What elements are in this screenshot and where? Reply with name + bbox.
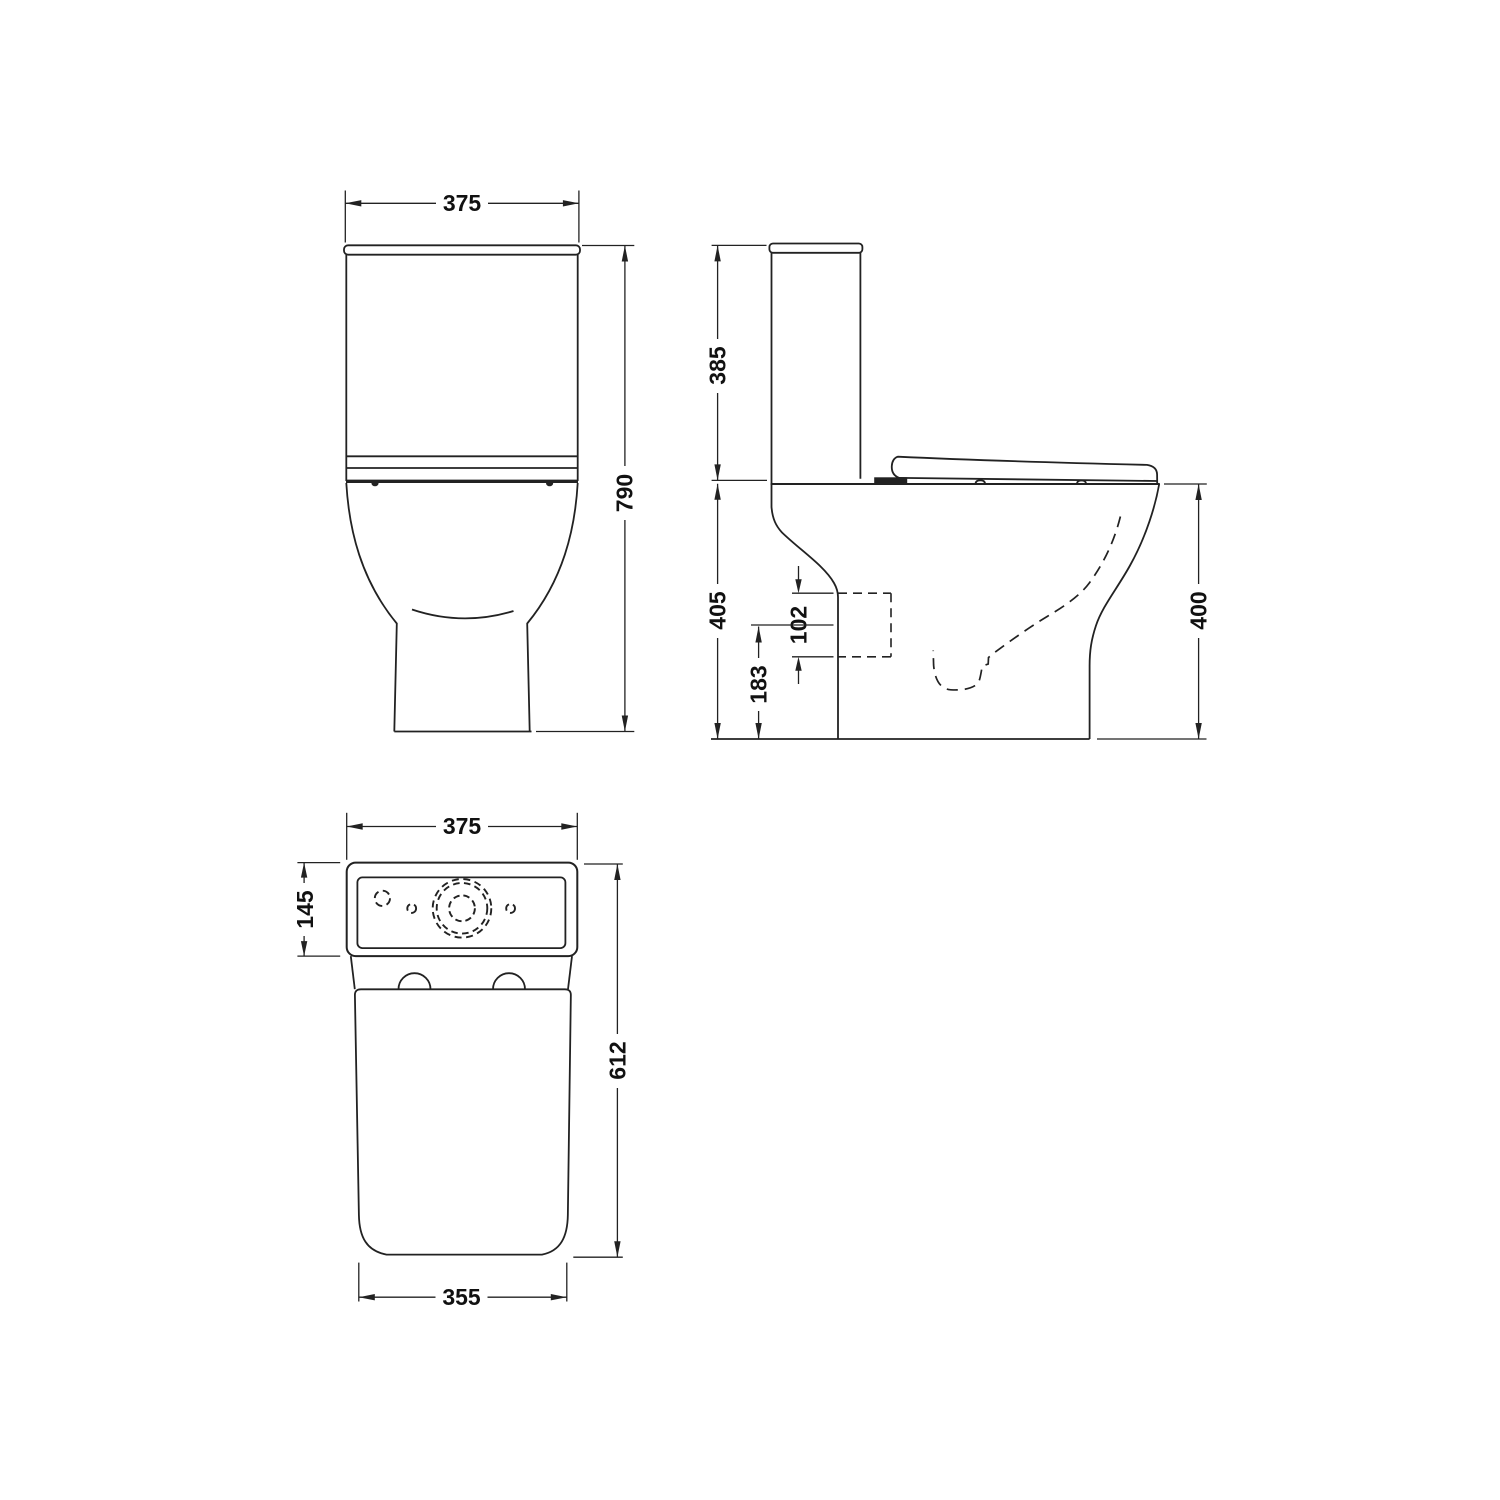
svg-text:375: 375 bbox=[443, 813, 482, 839]
svg-text:612: 612 bbox=[605, 1041, 631, 1079]
svg-text:400: 400 bbox=[1186, 591, 1212, 629]
svg-text:183: 183 bbox=[746, 665, 772, 703]
svg-text:385: 385 bbox=[705, 346, 731, 385]
svg-text:145: 145 bbox=[292, 890, 318, 929]
svg-text:405: 405 bbox=[705, 591, 731, 630]
svg-text:355: 355 bbox=[442, 1284, 481, 1310]
svg-text:790: 790 bbox=[612, 474, 638, 512]
svg-text:375: 375 bbox=[443, 190, 482, 216]
